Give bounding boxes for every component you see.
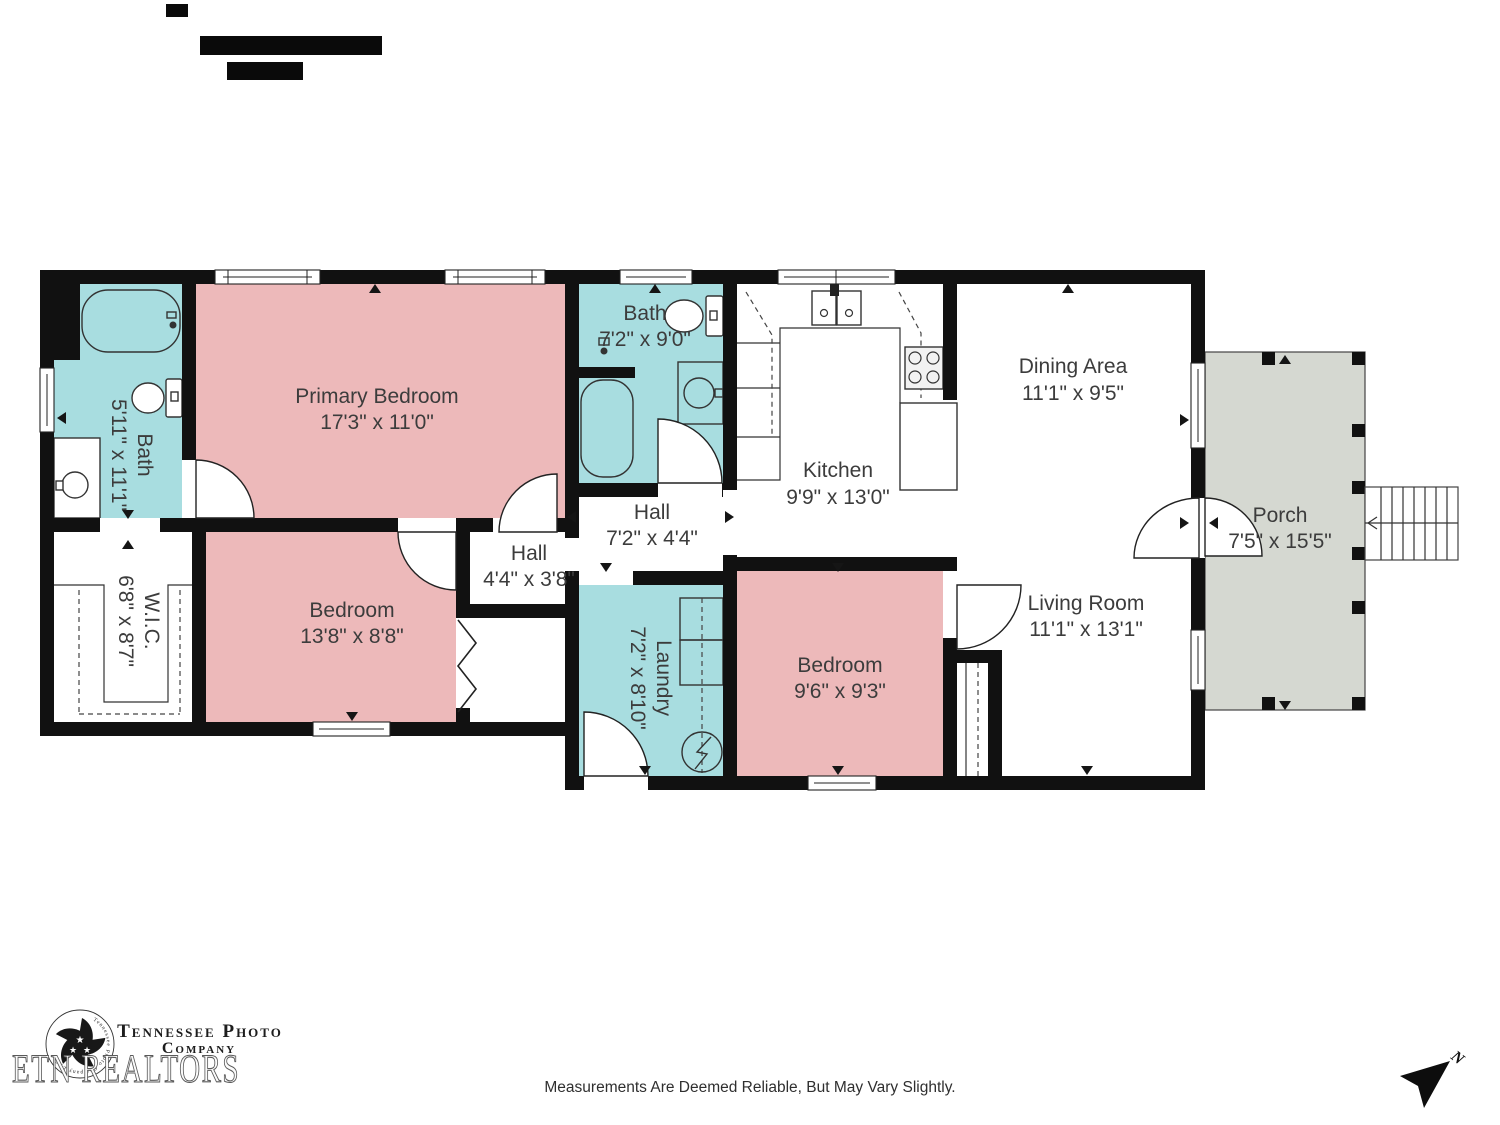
- wall: [160, 518, 398, 532]
- window: [808, 776, 876, 790]
- room-dims: 7'2" x 9'0": [599, 328, 691, 351]
- porch-post: [1262, 697, 1275, 710]
- disclaimer-text: Measurements Are Deemed Reliable, But Ma…: [544, 1079, 955, 1096]
- room-name: Kitchen: [803, 459, 873, 482]
- room-dims: 9'9" x 13'0": [786, 486, 890, 509]
- wall: [54, 284, 80, 360]
- wall: [456, 604, 579, 618]
- floorplan-page: Bath 5'11" x 11'1" Primary Bedroom 17'3"…: [0, 0, 1500, 1125]
- room-dims: 9'6" x 9'3": [794, 680, 886, 703]
- wall: [1191, 448, 1205, 498]
- opening: [182, 460, 196, 518]
- arrow-icon: [600, 563, 612, 572]
- room-name: Hall: [634, 501, 670, 524]
- porch-post: [1352, 601, 1365, 614]
- wall: [579, 483, 658, 497]
- kitchen-counter-outline: [737, 328, 900, 480]
- stairs: [1365, 487, 1458, 560]
- redacted-text-block: [227, 62, 303, 80]
- wall: [456, 518, 493, 532]
- room-dims: 17'3" x 11'0": [320, 411, 434, 434]
- kitchen-faucet-icon: [830, 283, 839, 296]
- porch-post: [1352, 424, 1365, 437]
- compass-north-label: N: [1447, 1047, 1468, 1069]
- opening: [658, 483, 722, 497]
- wall: [988, 650, 1002, 776]
- window: [445, 270, 545, 284]
- compass-arrow: [1400, 1061, 1450, 1108]
- window: [40, 368, 54, 432]
- wall: [192, 532, 206, 722]
- toilet-fixture: [132, 383, 164, 413]
- wall: [723, 284, 737, 490]
- room-name: Primary Bedroom: [295, 385, 458, 408]
- wall: [54, 518, 100, 532]
- room-dims: 11'1" x 13'1": [1029, 618, 1143, 641]
- kitchen-sink-bowl: [812, 291, 836, 325]
- room-name: Living Room: [1028, 592, 1145, 615]
- room-name: Bath: [623, 302, 666, 325]
- bathtub-drain-icon: [170, 322, 177, 329]
- opening: [565, 538, 579, 571]
- arrow-icon: [1180, 414, 1189, 426]
- wall: [943, 284, 957, 400]
- room-dims: 4'4" x 3'8": [483, 568, 575, 591]
- accordion-closet-door: [458, 620, 476, 712]
- room-dims: 7'2" x 8'10": [626, 626, 649, 730]
- door-arc: [957, 585, 1021, 649]
- window: [778, 270, 895, 284]
- pedestal-sink-fixture: [62, 472, 88, 498]
- wall: [633, 571, 723, 585]
- toilet-button: [710, 311, 717, 320]
- photographer-logo: ★ ★ ★ Tennessee Photo Company LLC Tennes…: [12, 1010, 283, 1091]
- north-arrow-icon: N: [1400, 1047, 1468, 1108]
- opening: [579, 571, 633, 585]
- wall: [565, 776, 1205, 790]
- label-wic: W.I.C. 6'8" x 8'7": [114, 575, 163, 667]
- room-name: Dining Area: [1019, 355, 1128, 378]
- wall: [40, 270, 54, 736]
- room-name: Bath: [133, 433, 156, 476]
- room-dims: 6'8" x 8'7": [114, 575, 137, 667]
- window: [1191, 363, 1205, 448]
- floorplan-image: Bath 5'11" x 11'1" Primary Bedroom 17'3"…: [0, 0, 1500, 1125]
- window: [1191, 630, 1205, 690]
- toilet-button: [171, 392, 178, 401]
- kitchen-counter-return: [900, 403, 957, 490]
- room-dims: 7'2" x 4'4": [606, 527, 698, 550]
- realtor-watermark: ETN REALTORS: [12, 1046, 240, 1091]
- room-name: Bedroom: [797, 654, 882, 677]
- wall: [1191, 558, 1205, 630]
- porch-post: [1262, 352, 1275, 365]
- room-name: Laundry: [652, 640, 675, 716]
- kitchen-sink-bowl: [837, 291, 861, 325]
- porch-post: [1352, 697, 1365, 710]
- room-dims: 5'11" x 11'1": [107, 399, 130, 511]
- room-dims: 13'8" x 8'8": [300, 625, 404, 648]
- wall: [40, 722, 579, 736]
- wall: [579, 367, 635, 378]
- redacted-text-block: [200, 36, 382, 55]
- room-dims: 11'1" x 9'5": [1022, 382, 1124, 405]
- kitchen-counter-divisions: [737, 343, 780, 437]
- wall: [1191, 690, 1205, 790]
- opening: [943, 571, 957, 638]
- porch-post: [1352, 481, 1365, 494]
- window: [313, 722, 390, 736]
- redacted-text-block: [166, 4, 188, 17]
- opening: [584, 776, 648, 790]
- front-door-arc: [1134, 498, 1199, 558]
- window: [215, 270, 320, 284]
- opening: [398, 518, 456, 532]
- wall: [565, 284, 579, 538]
- room-name: Hall: [511, 542, 547, 565]
- upper-cabinets-dashed: [746, 292, 772, 436]
- room-name: Bedroom: [309, 599, 394, 622]
- wall: [456, 708, 470, 722]
- sink-tap-icon: [56, 481, 63, 490]
- redaction-marks: [166, 4, 382, 80]
- wall: [456, 532, 470, 604]
- wall: [1191, 270, 1205, 363]
- wall: [723, 555, 737, 776]
- arrow-icon: [1081, 766, 1093, 775]
- company-name-line1: Tennessee Photo: [117, 1021, 283, 1042]
- room-dims: 7'5" x 15'5": [1228, 530, 1332, 553]
- room-name: Porch: [1253, 504, 1308, 527]
- wall: [182, 284, 196, 460]
- window: [620, 270, 692, 284]
- arrow-icon: [122, 540, 134, 549]
- wall: [565, 571, 579, 722]
- arrow-icon: [1062, 284, 1074, 293]
- porch-post: [1352, 352, 1365, 365]
- room-name: W.I.C.: [140, 592, 163, 649]
- opening: [100, 518, 160, 532]
- porch-post: [1352, 547, 1365, 560]
